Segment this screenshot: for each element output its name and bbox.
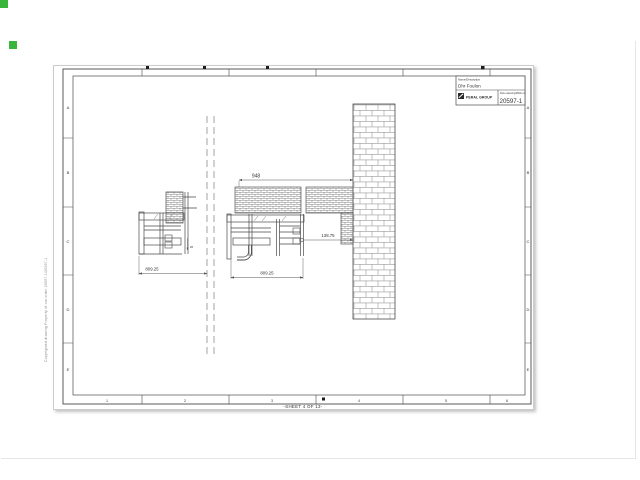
inner-frame xyxy=(73,76,525,395)
grid-row-label-right: D xyxy=(527,307,530,312)
grid-row-letters: A B C D E A B C D E xyxy=(67,105,530,372)
dim-overall: 948 xyxy=(252,174,261,180)
drawing-number-value: 20597-1 xyxy=(500,98,523,105)
outer-frame xyxy=(63,69,531,404)
dim-left: 809.25 xyxy=(145,267,159,272)
copyright-side-note: Copyrighted drawing Property of our orde… xyxy=(44,222,52,362)
sheet-number-label: -SHEET 4 OF 13- xyxy=(283,404,322,409)
grid-col-label: 3 xyxy=(271,399,273,403)
grid-col-label: 5 xyxy=(445,399,447,403)
viewer-right-edge xyxy=(635,41,636,459)
masonry-band-right xyxy=(306,187,353,213)
left-detail xyxy=(139,192,197,254)
dim-center: 809.25 xyxy=(260,271,274,276)
grid-row-label: A xyxy=(67,105,70,110)
drawing-svg: A B C D E A B C D E 1 2 3 4 5 6 -SHEE xyxy=(54,66,533,409)
masonry-bands xyxy=(235,187,353,244)
grid-col-label: 4 xyxy=(358,399,360,403)
grid-row-label: E xyxy=(67,367,70,372)
grid-row-label: B xyxy=(67,170,70,175)
fold-marks xyxy=(146,66,485,401)
grid-col-label: 1 xyxy=(106,399,108,403)
company-name: PERAL GROUP xyxy=(466,96,493,100)
grid-row-label-right: B xyxy=(527,170,530,175)
green-marker-top-left xyxy=(0,0,8,8)
center-detail xyxy=(227,214,304,260)
grid-row-label: D xyxy=(67,307,70,312)
dim-small: 26 xyxy=(190,245,194,249)
grid-col-label: 2 xyxy=(184,399,186,403)
grid-row-label-right: C xyxy=(527,239,530,244)
grid-separators xyxy=(63,69,531,404)
centerlines xyxy=(207,116,214,358)
drawing-sheet: A B C D E A B C D E 1 2 3 4 5 6 -SHEE xyxy=(53,65,534,410)
name-value: Dhr Foulon xyxy=(458,84,481,89)
brick-wall-pier xyxy=(353,104,395,319)
masonry-band-left xyxy=(235,187,301,213)
name-label: Name/Description xyxy=(458,78,481,82)
viewer-bottom-edge xyxy=(1,458,636,459)
dim-gap: 138.75 xyxy=(321,233,335,238)
grid-row-label: C xyxy=(67,239,70,244)
grid-row-label-right: E xyxy=(527,367,530,372)
grid-col-label: 6 xyxy=(506,399,508,403)
drawing-number-label: Deze tekening/DWG no. xyxy=(500,92,526,95)
viewer-canvas: Copyrighted drawing Property of our orde… xyxy=(0,0,640,480)
green-marker-secondary xyxy=(9,41,17,49)
masonry-strip-at-pier xyxy=(341,213,353,244)
grid-col-numbers: 1 2 3 4 5 6 xyxy=(106,399,508,403)
title-block: Name/Description Dhr Foulon PERAL GROUP … xyxy=(456,76,526,105)
grid-row-label-right: A xyxy=(527,105,530,110)
